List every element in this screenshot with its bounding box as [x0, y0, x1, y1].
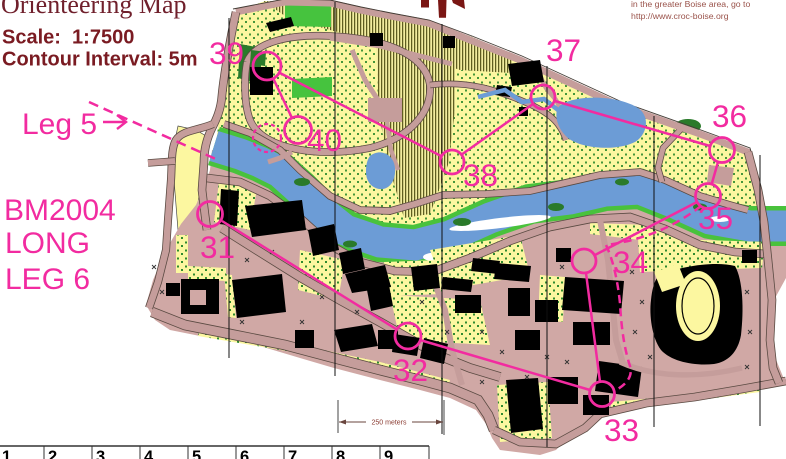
svg-text:6: 6	[240, 448, 249, 459]
svg-text:8: 8	[336, 448, 345, 459]
svg-text:LONG: LONG	[5, 227, 90, 260]
svg-text:40: 40	[307, 122, 342, 158]
svg-text:1: 1	[2, 448, 11, 459]
svg-text:7: 7	[288, 448, 297, 459]
svg-text:BM2004: BM2004	[4, 194, 116, 227]
svg-text:38: 38	[463, 157, 498, 193]
svg-text:4: 4	[144, 448, 154, 459]
svg-text:9: 9	[384, 448, 393, 459]
svg-text:Leg 5: Leg 5	[22, 108, 97, 141]
svg-text:5: 5	[192, 448, 201, 459]
svg-text:2: 2	[48, 448, 57, 459]
svg-text:http://www.croc-boise.org: http://www.croc-boise.org	[631, 11, 729, 21]
svg-text:Scale: 1:7500: Scale: 1:7500	[2, 27, 134, 49]
svg-text:32: 32	[393, 352, 428, 388]
svg-text:31: 31	[200, 229, 235, 265]
svg-text:250 meters: 250 meters	[371, 420, 407, 427]
svg-text:Orienteering Map: Orienteering Map	[1, 0, 187, 19]
svg-text:36: 36	[712, 98, 747, 134]
svg-text:LEG 6: LEG 6	[5, 263, 90, 296]
svg-text:Contour Interval: 5m: Contour Interval: 5m	[2, 49, 198, 71]
svg-text:35: 35	[698, 200, 733, 236]
svg-text:37: 37	[546, 32, 581, 68]
svg-text:3: 3	[96, 448, 105, 459]
svg-text:39: 39	[209, 35, 244, 71]
svg-text:33: 33	[604, 412, 639, 448]
svg-text:in the greater Boise area, go: in the greater Boise area, go to	[631, 0, 750, 9]
svg-text:34: 34	[613, 244, 648, 280]
